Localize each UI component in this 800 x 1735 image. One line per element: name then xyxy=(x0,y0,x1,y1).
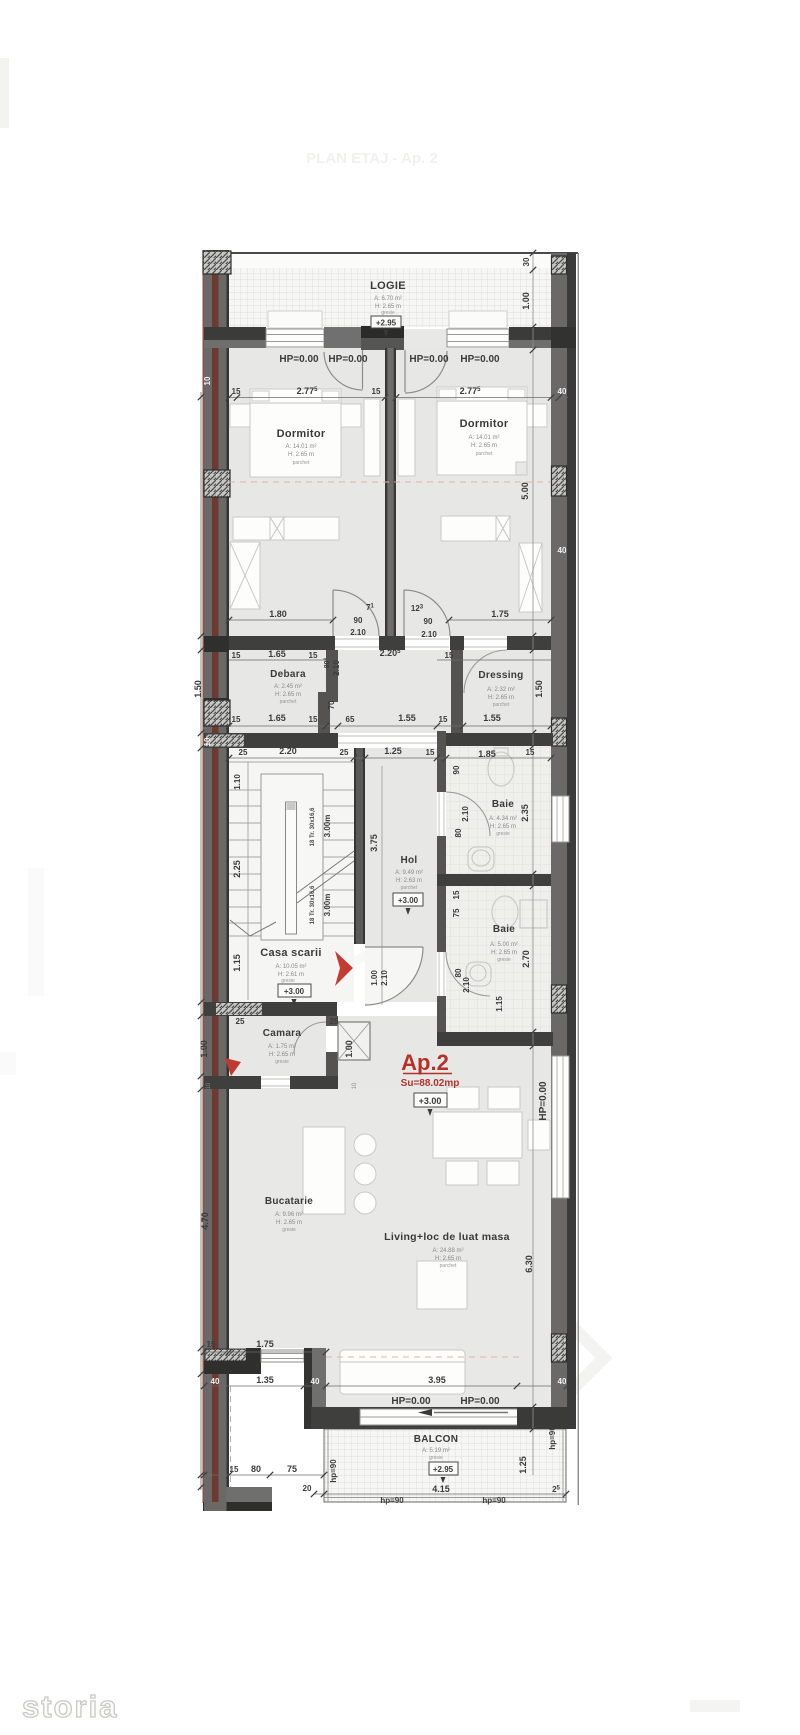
svg-text:1.00: 1.00 xyxy=(370,970,379,986)
svg-text:90: 90 xyxy=(452,765,461,774)
svg-text:25: 25 xyxy=(330,1017,339,1026)
svg-text:2.20: 2.20 xyxy=(279,746,297,756)
svg-text:1.25: 1.25 xyxy=(384,746,402,756)
svg-text:4.15: 4.15 xyxy=(432,1484,450,1494)
svg-text:A: 14.01 m²: A: 14.01 m² xyxy=(285,444,316,450)
svg-text:1.15: 1.15 xyxy=(232,954,242,972)
svg-text:+2.95: +2.95 xyxy=(433,1465,454,1474)
svg-text:2.10: 2.10 xyxy=(461,806,470,822)
svg-text:parchet: parchet xyxy=(476,451,493,457)
svg-text:15: 15 xyxy=(372,387,381,396)
svg-text:A: 24.88 m²: A: 24.88 m² xyxy=(432,1248,463,1254)
svg-text:+3.00: +3.00 xyxy=(398,896,419,905)
svg-text:HP=0.00: HP=0.00 xyxy=(460,354,500,365)
svg-text:15: 15 xyxy=(232,387,241,396)
svg-text:20: 20 xyxy=(303,1484,312,1493)
svg-text:Camara: Camara xyxy=(263,1028,302,1039)
svg-text:2.25: 2.25 xyxy=(232,860,242,878)
svg-text:hp=90: hp=90 xyxy=(548,1426,557,1450)
svg-text:A: 4.34 m²: A: 4.34 m² xyxy=(489,816,517,822)
svg-text:10: 10 xyxy=(203,376,212,385)
svg-text:1.65: 1.65 xyxy=(268,649,286,659)
svg-text:Casa scarii: Casa scarii xyxy=(260,947,321,959)
svg-text:A: 1.75 m²: A: 1.75 m² xyxy=(268,1044,296,1050)
svg-text:PLAN ETAJ - Ap. 2: PLAN ETAJ - Ap. 2 xyxy=(306,150,438,167)
svg-text:A: 10.05 m²: A: 10.05 m² xyxy=(275,964,306,970)
svg-text:1.35: 1.35 xyxy=(256,1375,274,1385)
svg-text:65: 65 xyxy=(346,715,355,724)
svg-text:1.75: 1.75 xyxy=(491,609,509,619)
svg-text:Baie: Baie xyxy=(492,799,514,810)
svg-text:15: 15 xyxy=(426,748,435,757)
svg-text:parchet: parchet xyxy=(280,699,297,705)
svg-text:70: 70 xyxy=(327,700,336,709)
svg-text:A: 2.32 m²: A: 2.32 m² xyxy=(487,687,515,693)
svg-text:3.95: 3.95 xyxy=(428,1375,446,1385)
svg-text:A: 6.70 m²: A: 6.70 m² xyxy=(374,296,402,302)
svg-text:H: 2.65 m: H: 2.65 m xyxy=(276,1220,302,1226)
svg-text:HP=0.00: HP=0.00 xyxy=(538,1081,549,1121)
svg-text:A: 5.00 m²: A: 5.00 m² xyxy=(490,942,518,948)
svg-text:15: 15 xyxy=(452,890,461,899)
svg-text:Su=88.02mp: Su=88.02mp xyxy=(401,1078,460,1089)
svg-text:1.00: 1.00 xyxy=(199,1040,209,1058)
svg-text:40: 40 xyxy=(558,387,567,396)
svg-text:gresie: gresie xyxy=(381,310,395,316)
svg-text:15: 15 xyxy=(232,651,241,660)
svg-text:parchet: parchet xyxy=(293,460,310,466)
svg-text:H: 2.65 m: H: 2.65 m xyxy=(435,1256,461,1262)
svg-text:80°: 80° xyxy=(323,658,331,669)
svg-text:gresie: gresie xyxy=(496,831,510,837)
svg-text:1.50: 1.50 xyxy=(193,680,203,698)
svg-text:H: 2.63 m: H: 2.63 m xyxy=(396,878,422,884)
svg-text:18 Tr. 30x16,6: 18 Tr. 30x16,6 xyxy=(310,885,316,924)
svg-text:1.55: 1.55 xyxy=(398,713,416,723)
svg-text:90: 90 xyxy=(424,617,433,626)
svg-text:15: 15 xyxy=(445,651,454,660)
svg-text:40: 40 xyxy=(558,1377,567,1386)
svg-text:storia: storia xyxy=(22,1689,118,1724)
svg-text:Dormitor: Dormitor xyxy=(277,428,326,440)
svg-text:parchet: parchet xyxy=(440,1263,457,1269)
svg-text:BALCON: BALCON xyxy=(414,1434,459,1445)
svg-text:LOGIE: LOGIE xyxy=(370,280,406,292)
svg-text:+3.00: +3.00 xyxy=(284,987,305,996)
svg-text:+3.00: +3.00 xyxy=(419,1096,442,1106)
svg-text:15: 15 xyxy=(230,1465,239,1474)
svg-text:5.00: 5.00 xyxy=(520,482,530,500)
svg-text:HP=0.00: HP=0.00 xyxy=(460,1396,500,1407)
svg-text:A: 9.49 m²: A: 9.49 m² xyxy=(395,870,423,876)
svg-text:gresie: gresie xyxy=(282,1227,296,1233)
svg-text:1.75: 1.75 xyxy=(256,1339,274,1349)
svg-text:Ap.2: Ap.2 xyxy=(401,1050,449,1075)
svg-text:2.10: 2.10 xyxy=(421,630,437,639)
svg-text:HP=0.00: HP=0.00 xyxy=(409,354,449,365)
svg-text:80: 80 xyxy=(454,828,463,837)
svg-text:6.30: 6.30 xyxy=(524,1255,534,1273)
svg-text:1.25: 1.25 xyxy=(518,1456,528,1474)
svg-text:80: 80 xyxy=(454,968,463,977)
svg-text:40: 40 xyxy=(558,546,567,555)
svg-text:2.10: 2.10 xyxy=(332,660,341,676)
svg-text:1.85: 1.85 xyxy=(478,749,496,759)
svg-text:H: 2.65 m: H: 2.65 m xyxy=(491,950,517,956)
svg-text:4.70: 4.70 xyxy=(200,1212,210,1230)
svg-text:15: 15 xyxy=(232,715,241,724)
svg-text:A: 5.19 m²: A: 5.19 m² xyxy=(422,1448,450,1454)
svg-text:1.00: 1.00 xyxy=(344,1040,354,1058)
svg-text:Baie: Baie xyxy=(493,924,515,935)
svg-text:2.70: 2.70 xyxy=(521,950,531,968)
svg-text:3.75: 3.75 xyxy=(369,834,379,852)
svg-text:2.35: 2.35 xyxy=(520,804,530,822)
svg-text:75: 75 xyxy=(452,908,461,917)
svg-text:10: 10 xyxy=(206,1082,212,1089)
svg-text:H: 2.65 m: H: 2.65 m xyxy=(269,1052,295,1058)
svg-text:40: 40 xyxy=(311,1377,320,1386)
svg-text:15: 15 xyxy=(207,1340,216,1349)
svg-text:3.00m: 3.00m xyxy=(323,815,332,838)
svg-text:A: 14.01 m²: A: 14.01 m² xyxy=(468,435,499,441)
svg-text:Dormitor: Dormitor xyxy=(460,418,509,430)
svg-text:gresie: gresie xyxy=(281,978,295,984)
svg-text:3.00m: 3.00m xyxy=(323,894,332,917)
svg-text:18 Tr. 30x16,6: 18 Tr. 30x16,6 xyxy=(310,807,316,846)
svg-text:90: 90 xyxy=(354,616,363,625)
svg-text:A: 9.96 m²: A: 9.96 m² xyxy=(275,1212,303,1218)
svg-text:10: 10 xyxy=(352,1082,358,1089)
svg-text:10: 10 xyxy=(203,737,212,746)
svg-text:parchet: parchet xyxy=(493,702,510,708)
svg-text:2.10: 2.10 xyxy=(350,628,366,637)
svg-text:1.10: 1.10 xyxy=(233,774,242,790)
svg-text:25: 25 xyxy=(239,748,248,757)
svg-text:1.65: 1.65 xyxy=(268,713,286,723)
svg-text:HP=0.00: HP=0.00 xyxy=(328,354,368,365)
svg-text:80: 80 xyxy=(251,1464,261,1474)
svg-text:1.00: 1.00 xyxy=(521,292,531,310)
svg-text:Debara: Debara xyxy=(270,669,306,680)
svg-text:HP=0.00: HP=0.00 xyxy=(391,1396,431,1407)
svg-text:hp=90: hp=90 xyxy=(482,1496,506,1505)
svg-text:A: 2.45 m²: A: 2.45 m² xyxy=(274,684,302,690)
svg-text:H: 2.65 m: H: 2.65 m xyxy=(471,443,497,449)
svg-text:40: 40 xyxy=(211,1377,220,1386)
svg-text:gresie: gresie xyxy=(497,957,511,963)
svg-text:hp=90: hp=90 xyxy=(380,1496,404,1505)
svg-text:1.50: 1.50 xyxy=(534,680,544,698)
svg-text:H: 2.65 m: H: 2.65 m xyxy=(488,695,514,701)
svg-text:hp=90: hp=90 xyxy=(329,1459,338,1483)
svg-text:30: 30 xyxy=(522,257,531,266)
svg-text:H: 2.65 m: H: 2.65 m xyxy=(288,452,314,458)
svg-text:1.15: 1.15 xyxy=(495,996,504,1012)
svg-text:Bucatarie: Bucatarie xyxy=(265,1196,313,1207)
svg-text:Living+loc de luat masa: Living+loc de luat masa xyxy=(384,1231,510,1243)
svg-text:25: 25 xyxy=(236,1017,245,1026)
svg-text:2.10: 2.10 xyxy=(380,970,389,986)
svg-text:15: 15 xyxy=(439,715,448,724)
svg-text:Dressing: Dressing xyxy=(478,670,523,681)
svg-text:HP=0.00: HP=0.00 xyxy=(279,354,319,365)
svg-text:2.10: 2.10 xyxy=(462,977,471,993)
svg-text:H: 2.65 m: H: 2.65 m xyxy=(490,824,516,830)
svg-text:25: 25 xyxy=(340,748,349,757)
svg-text:15: 15 xyxy=(309,715,318,724)
svg-text:gresie: gresie xyxy=(275,1059,289,1065)
svg-text:Hol: Hol xyxy=(400,855,417,866)
svg-text:15: 15 xyxy=(526,748,535,757)
svg-text:15: 15 xyxy=(309,651,318,660)
svg-text:75: 75 xyxy=(287,1464,297,1474)
svg-text:+2.95: +2.95 xyxy=(376,319,397,328)
svg-text:1.55: 1.55 xyxy=(483,713,501,723)
svg-text:H: 2.65 m: H: 2.65 m xyxy=(275,692,301,698)
svg-text:parchet: parchet xyxy=(401,885,418,891)
svg-text:1.80: 1.80 xyxy=(269,609,287,619)
svg-text:gresie: gresie xyxy=(429,1455,443,1461)
